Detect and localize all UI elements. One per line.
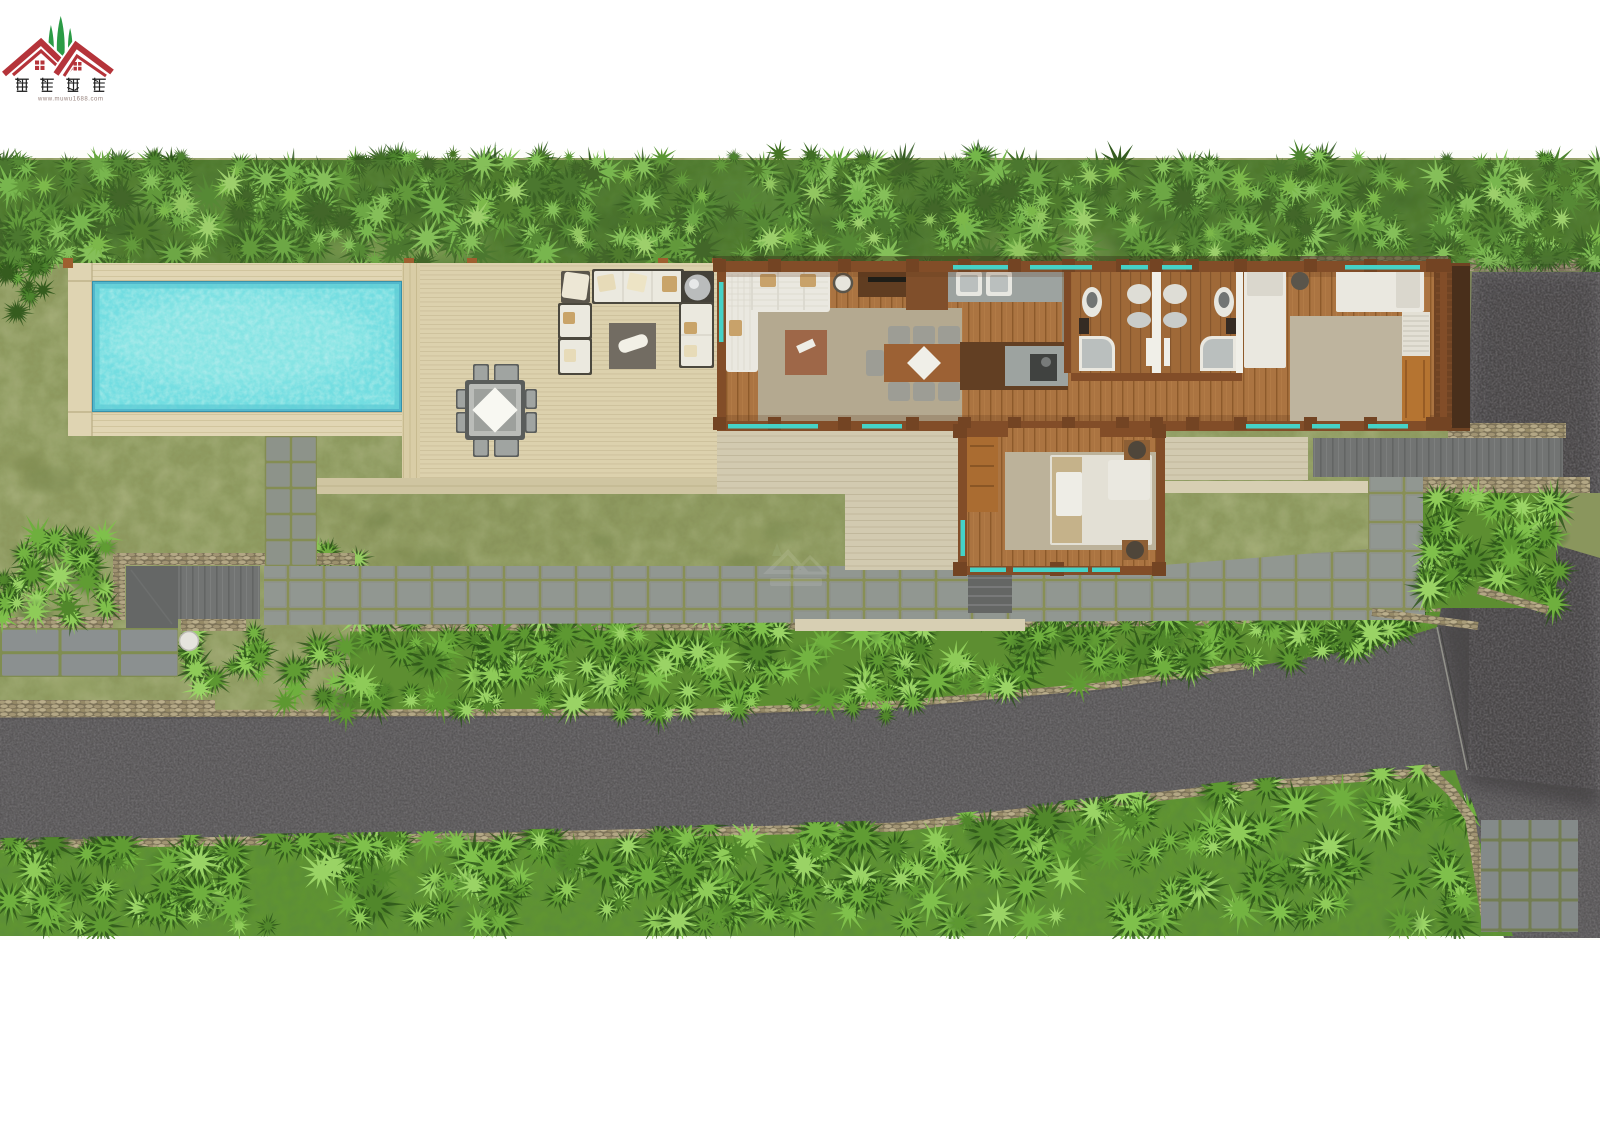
svg-text:www.muwu1688.com: www.muwu1688.com bbox=[37, 97, 104, 103]
